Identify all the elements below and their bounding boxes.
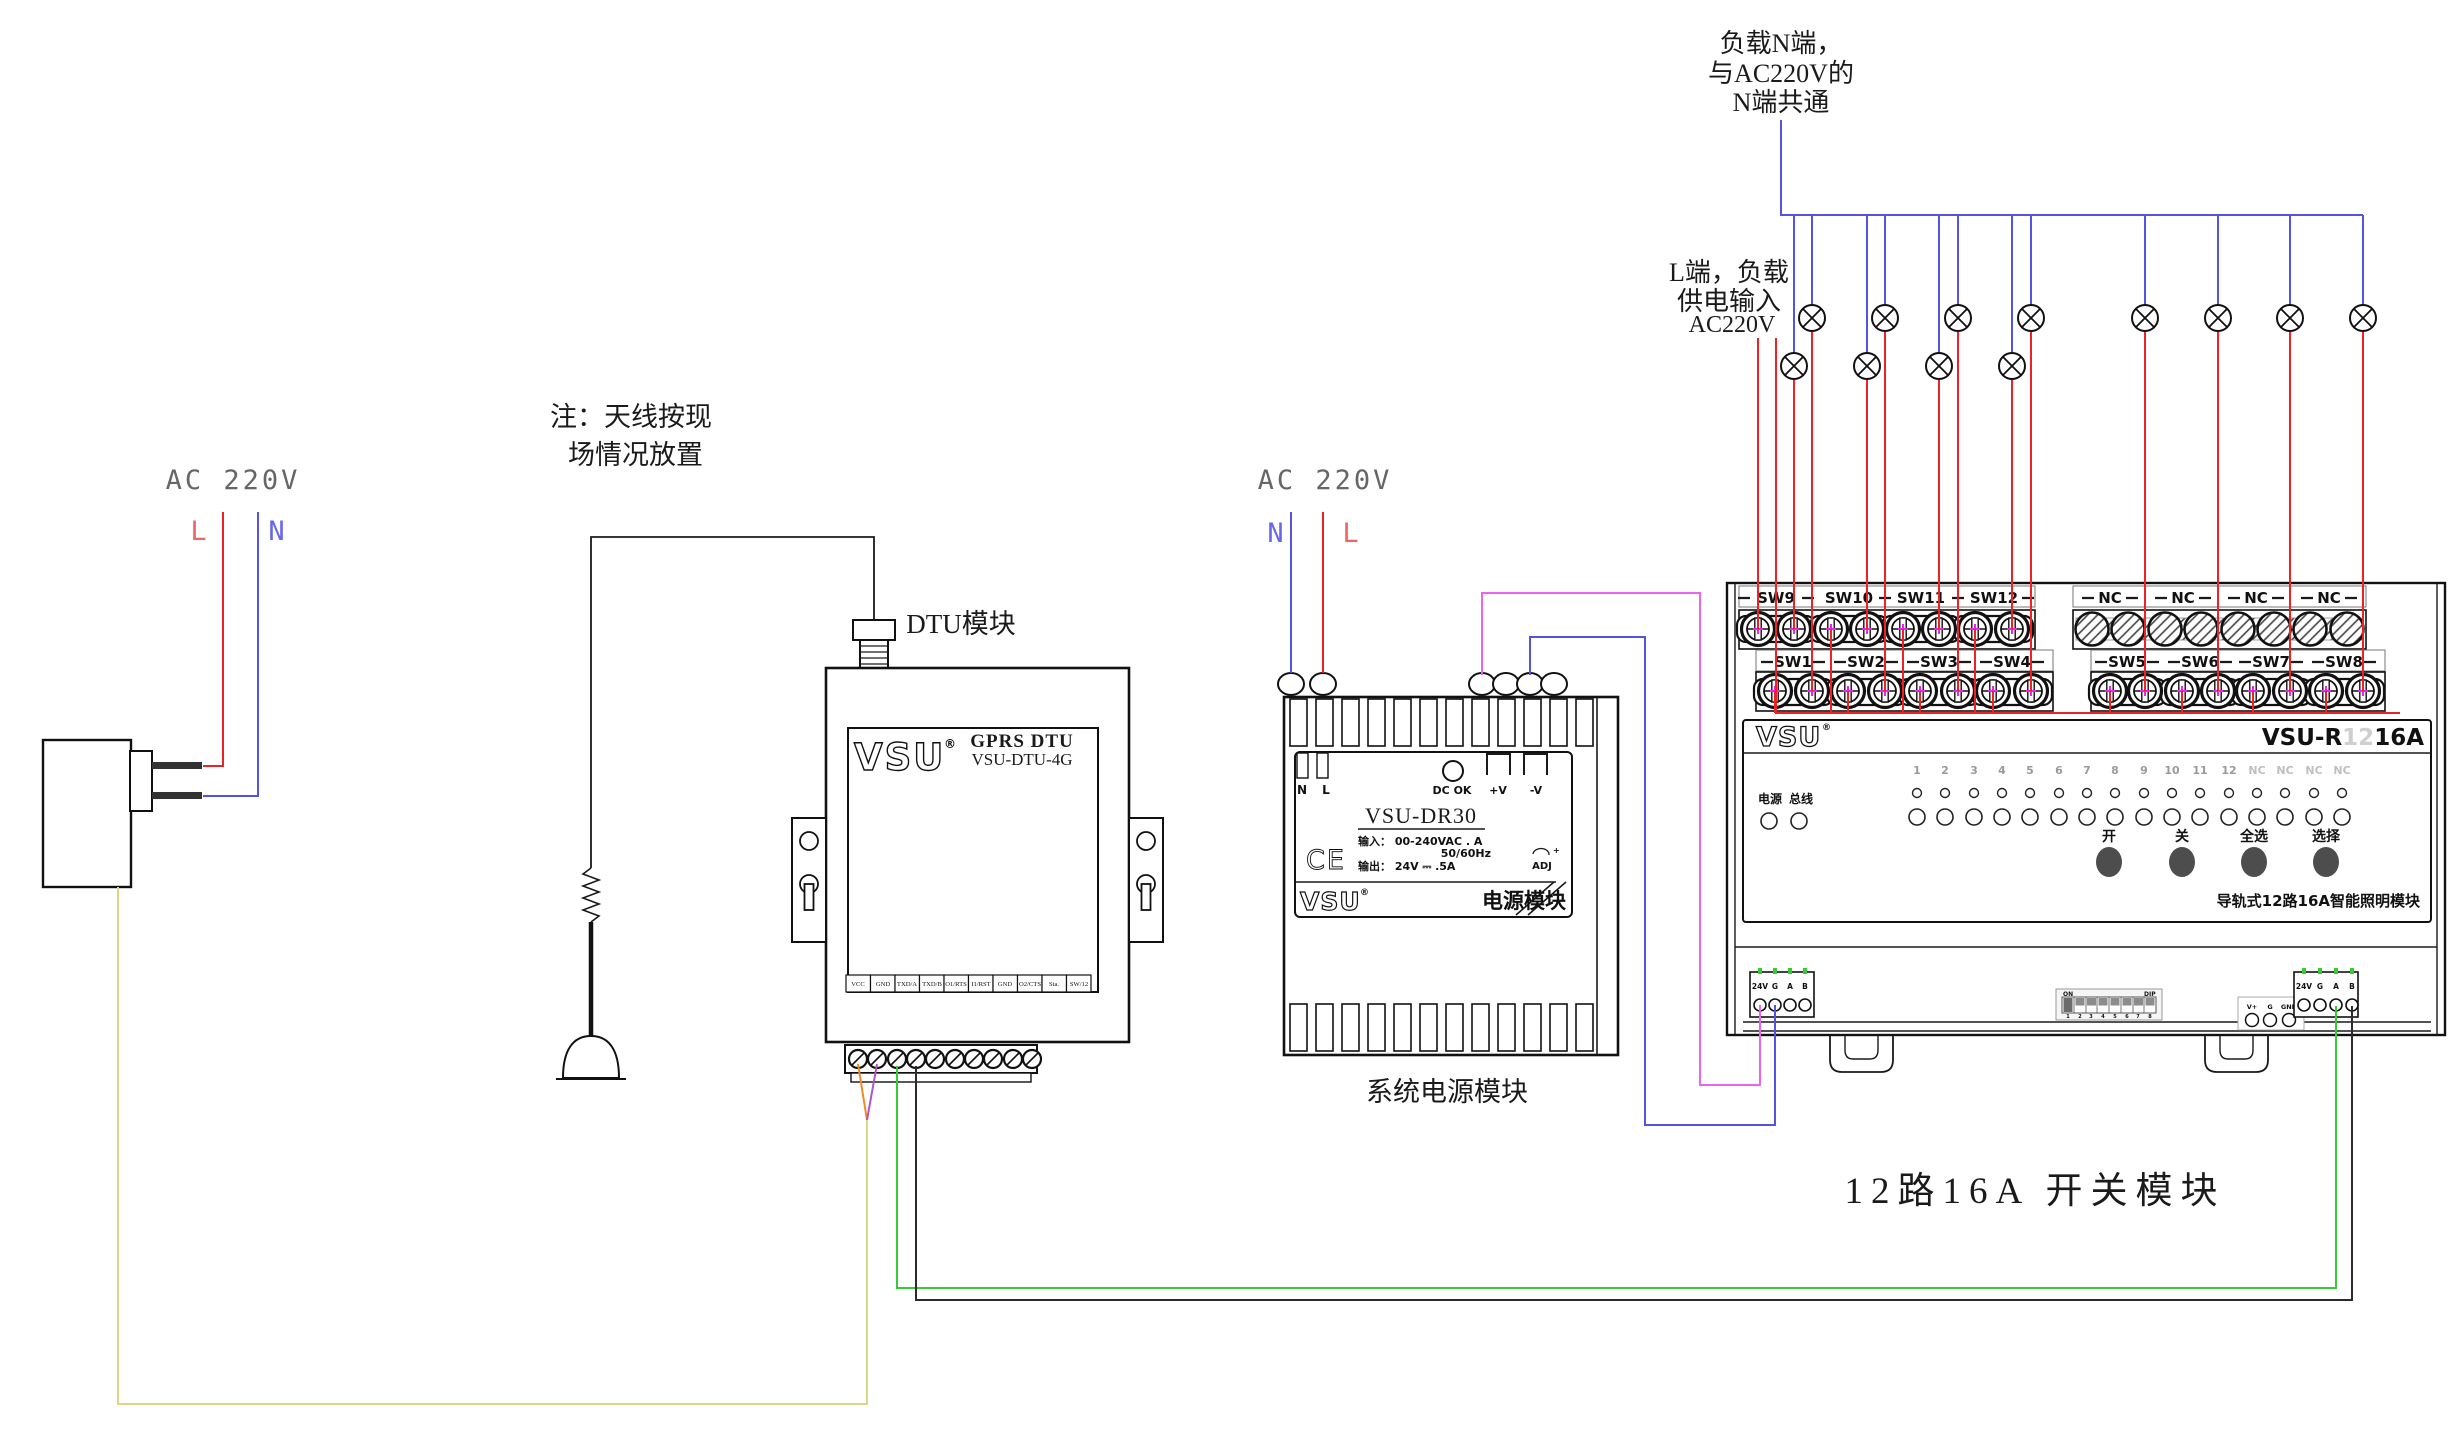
svg-text:5: 5 xyxy=(2113,1014,2117,1020)
power-model: VSU-DR30 xyxy=(1365,803,1477,828)
on-button-label: 开 xyxy=(2102,829,2116,845)
aux-vplus: V+ xyxy=(2247,1003,2257,1011)
on-button xyxy=(2096,847,2122,877)
lamp-icon xyxy=(1926,353,1952,379)
dtu-term-label: SW/12 xyxy=(1070,981,1088,988)
svg-text:8: 8 xyxy=(2111,764,2119,777)
sw4-label: SW4 xyxy=(1993,653,2031,671)
ac220v-label-left: AC 220V xyxy=(166,465,301,496)
power-spec-output: 输出： 24V ⎓ .5A xyxy=(1358,859,1456,873)
dtu-mount-ear-right xyxy=(1129,818,1163,942)
svg-text:9: 9 xyxy=(2140,764,2148,777)
power-term-n: N xyxy=(1297,783,1307,797)
lamp-icon xyxy=(1872,305,1898,331)
dtu-term-label: TXD/B xyxy=(922,981,942,988)
lamp-icon xyxy=(1945,305,1971,331)
comm-right-a: A xyxy=(2333,982,2339,991)
lamp-icon xyxy=(1854,353,1880,379)
dtu-brand-logo: VSU xyxy=(854,736,945,779)
antenna-note-line2: 场情况放置 xyxy=(568,440,703,470)
sw2-label: SW2 xyxy=(1847,653,1885,671)
diagram-canvas: AC 220V L N 注：天线按现 场情况放置 DTU模块 xyxy=(0,0,2457,1433)
sw1-label: SW1 xyxy=(1774,653,1812,671)
sw8-label: SW8 xyxy=(2325,653,2363,671)
load-n-line3: N端共通 xyxy=(1733,88,1830,117)
load-l-line1: L端，负载 xyxy=(1669,258,1789,287)
live-label-left: L xyxy=(190,516,209,547)
ear-hole-icon xyxy=(1137,832,1155,850)
bus-led-icon xyxy=(1791,813,1807,829)
power-term-l: L xyxy=(1322,783,1330,797)
power-module: AC 220V N L N L D xyxy=(1258,465,1618,1107)
load-lamps xyxy=(1781,305,2376,379)
nc-label: NC xyxy=(2098,589,2122,607)
antenna-connector-nut xyxy=(853,620,895,640)
dtu-term-label: TXD/A xyxy=(897,981,917,988)
lamp-icon xyxy=(1999,353,2025,379)
svg-text:7: 7 xyxy=(2083,764,2091,777)
lamp-icon xyxy=(2018,305,2044,331)
dtu-product-name: GPRS DTU xyxy=(970,731,1074,752)
switch-model-prefix: VSU-R xyxy=(2262,725,2343,751)
svg-text:2: 2 xyxy=(1941,764,1949,777)
wiring-diagram: AC 220V L N 注：天线按现 场情况放置 DTU模块 xyxy=(0,0,2457,1433)
power-spec-input: 输入： 00-240VAC . A xyxy=(1358,834,1483,848)
comm-left-a: A xyxy=(1787,982,1793,991)
dtu-term-label: VCC xyxy=(851,981,865,988)
dc-ok-led-icon xyxy=(1443,761,1463,781)
dtu-term-label: GND xyxy=(876,981,891,988)
switch-module: SW9 SW10 SW11 SW12 NC NC NC NC xyxy=(1727,583,2445,1072)
power-brand-logo: VSU xyxy=(1300,887,1361,916)
lamp-icon xyxy=(1781,353,1807,379)
din-clips xyxy=(1830,1035,2268,1072)
wire-rs485-b xyxy=(916,1006,2352,1300)
svg-text:1: 1 xyxy=(1913,764,1921,777)
antenna-note-line1: 注：天线按现 xyxy=(550,402,712,432)
select-button-label: 选择 xyxy=(2312,828,2341,845)
load-l-annotation: L端，负载 供电输入 AC220V xyxy=(1669,258,1789,338)
antenna-coil xyxy=(583,868,599,922)
bus-led-label: 总线 xyxy=(1789,791,1813,806)
power-caption: 系统电源模块 xyxy=(1366,1077,1528,1107)
power-panel-label: 电源模块 xyxy=(1482,889,1567,913)
fuse-slot xyxy=(1317,753,1328,778)
dtu-model: VSU-DTU-4G xyxy=(971,750,1072,769)
svg-text:11: 11 xyxy=(2192,764,2207,777)
dtu-term-label: I1/RST xyxy=(971,981,990,988)
v-minus-label: -V xyxy=(1530,784,1543,797)
ce-mark-icon: CE xyxy=(1306,845,1346,876)
load-n-annotation: 负载N端， 与AC220V的 N端共通 xyxy=(1708,29,1854,117)
power-plug xyxy=(43,740,202,887)
switch-footer-text: 导轨式12路16A智能照明模块 xyxy=(2217,892,2421,910)
svg-text:2: 2 xyxy=(2078,1014,2082,1020)
comm-left-b: B xyxy=(1802,982,1808,991)
switch-model-suffix: 16A xyxy=(2374,725,2424,751)
svg-text:4: 4 xyxy=(1998,764,2006,777)
svg-text:12: 12 xyxy=(2221,764,2236,777)
switch-brand-reg: ® xyxy=(1822,723,1831,733)
dtu-module: DTU模块 VSU ® GPRS DTU VSU-DTU-4G xyxy=(792,609,1163,1082)
mains-supply-left: AC 220V L N xyxy=(43,465,300,887)
dtu-term-label: O1/RTS xyxy=(945,981,967,988)
lamp-icon xyxy=(2205,305,2231,331)
wire-adapter-dc xyxy=(118,887,867,1404)
power-spec-freq: 50/60Hz xyxy=(1441,847,1491,860)
antenna-note: 注：天线按现 场情况放置 xyxy=(550,402,712,470)
lamp-icon xyxy=(2277,305,2303,331)
bottom-title: 12路16A 开关模块 xyxy=(1845,1170,2226,1212)
load-l-line3: AC220V xyxy=(1689,312,1776,338)
v-plus-label: +V xyxy=(1489,784,1507,797)
sw7-label: SW7 xyxy=(2252,653,2290,671)
lamp-icon xyxy=(2350,305,2376,331)
sw10-label: SW10 xyxy=(1825,589,1873,607)
sw11-label: SW11 xyxy=(1897,589,1945,607)
dtu-mount-ear-left xyxy=(792,818,826,942)
sw3-label: SW3 xyxy=(1920,653,1958,671)
plug-pin-neutral xyxy=(152,792,202,799)
svg-text:NC: NC xyxy=(2248,764,2265,777)
comm-right-b: B xyxy=(2349,982,2355,991)
aux-g: G xyxy=(2267,1003,2272,1011)
plug-pin-live xyxy=(152,762,202,769)
dtu-term-label: O2/CTS xyxy=(1019,981,1041,988)
wire-live-plug xyxy=(203,512,223,766)
fuse-slot xyxy=(1297,753,1308,778)
svg-text:3: 3 xyxy=(1970,764,1978,777)
dtu-brand-reg: ® xyxy=(944,737,956,751)
svg-text:5: 5 xyxy=(2026,764,2034,777)
svg-text:NC: NC xyxy=(2276,764,2293,777)
svg-text:NC: NC xyxy=(2305,764,2322,777)
power-brand-reg: ® xyxy=(1360,888,1369,898)
svg-text:NC: NC xyxy=(2333,764,2350,777)
select-all-button xyxy=(2241,847,2267,877)
power-led-icon xyxy=(1761,813,1777,829)
svg-text:6: 6 xyxy=(2055,764,2063,777)
sw12-label: SW12 xyxy=(1970,589,2018,607)
ac220v-label-power: AC 220V xyxy=(1258,465,1393,496)
lamp-icon xyxy=(2132,305,2158,331)
dip-switch: ON DIP 1 2 3 4 5 6 7 8 xyxy=(2056,989,2162,1020)
power-led-label: 电源 xyxy=(1758,791,1782,806)
select-all-button-label: 全选 xyxy=(2239,828,2268,845)
nc-label: NC xyxy=(2244,589,2268,607)
switch-model: VSU-R1216A xyxy=(2262,725,2424,751)
comm-left-g: G xyxy=(1772,982,1778,991)
wire-neutral-plug xyxy=(203,512,258,796)
nc-label: NC xyxy=(2317,589,2341,607)
switch-model-channels: 12 xyxy=(2342,725,2374,751)
dtu-term-label: Sta. xyxy=(1049,981,1059,988)
svg-text:+: + xyxy=(1553,846,1560,855)
svg-text:7: 7 xyxy=(2136,1014,2140,1020)
comm-block-right: 24V G A B xyxy=(2294,968,2358,1017)
neutral-bus xyxy=(1781,120,2363,353)
svg-text:3: 3 xyxy=(2089,1014,2093,1020)
nc-label: NC xyxy=(2171,589,2195,607)
power-neutral-label: N xyxy=(1267,518,1286,549)
dtu-caption: DTU模块 xyxy=(906,609,1016,639)
off-button xyxy=(2169,847,2195,877)
power-live-label: L xyxy=(1342,518,1361,549)
comm-left-24v: 24V xyxy=(1752,982,1768,991)
dtu-terminal-labels: VCC GND TXD/A TXD/B O1/RTS I1/RST GND O2… xyxy=(846,975,1091,992)
load-n-line2: 与AC220V的 xyxy=(1708,59,1854,88)
svg-text:8: 8 xyxy=(2148,1014,2152,1020)
sw6-label: SW6 xyxy=(2181,653,2219,671)
power-top-terminals xyxy=(1278,673,1567,695)
switch-brand-logo: VSU xyxy=(1756,722,1821,753)
comm-right-24v: 24V xyxy=(2296,982,2312,991)
svg-text:10: 10 xyxy=(2164,764,2180,777)
antenna-base xyxy=(563,1036,619,1078)
svg-text:4: 4 xyxy=(2101,1014,2105,1020)
load-n-line1: 负载N端， xyxy=(1720,29,1843,58)
svg-text:6: 6 xyxy=(2125,1014,2129,1020)
dc-ok-label: DC OK xyxy=(1433,784,1472,797)
dtu-term-label: GND xyxy=(998,981,1013,988)
lamp-icon xyxy=(1799,305,1825,331)
adj-label: ADJ xyxy=(1532,861,1552,872)
off-button-label: 关 xyxy=(2175,828,2189,845)
sw5-label: SW5 xyxy=(2108,653,2146,671)
select-button xyxy=(2313,847,2339,877)
ear-hole-icon xyxy=(800,832,818,850)
svg-text:1: 1 xyxy=(2066,1014,2070,1020)
comm-right-g: G xyxy=(2317,982,2323,991)
neutral-label-left: N xyxy=(268,516,287,547)
